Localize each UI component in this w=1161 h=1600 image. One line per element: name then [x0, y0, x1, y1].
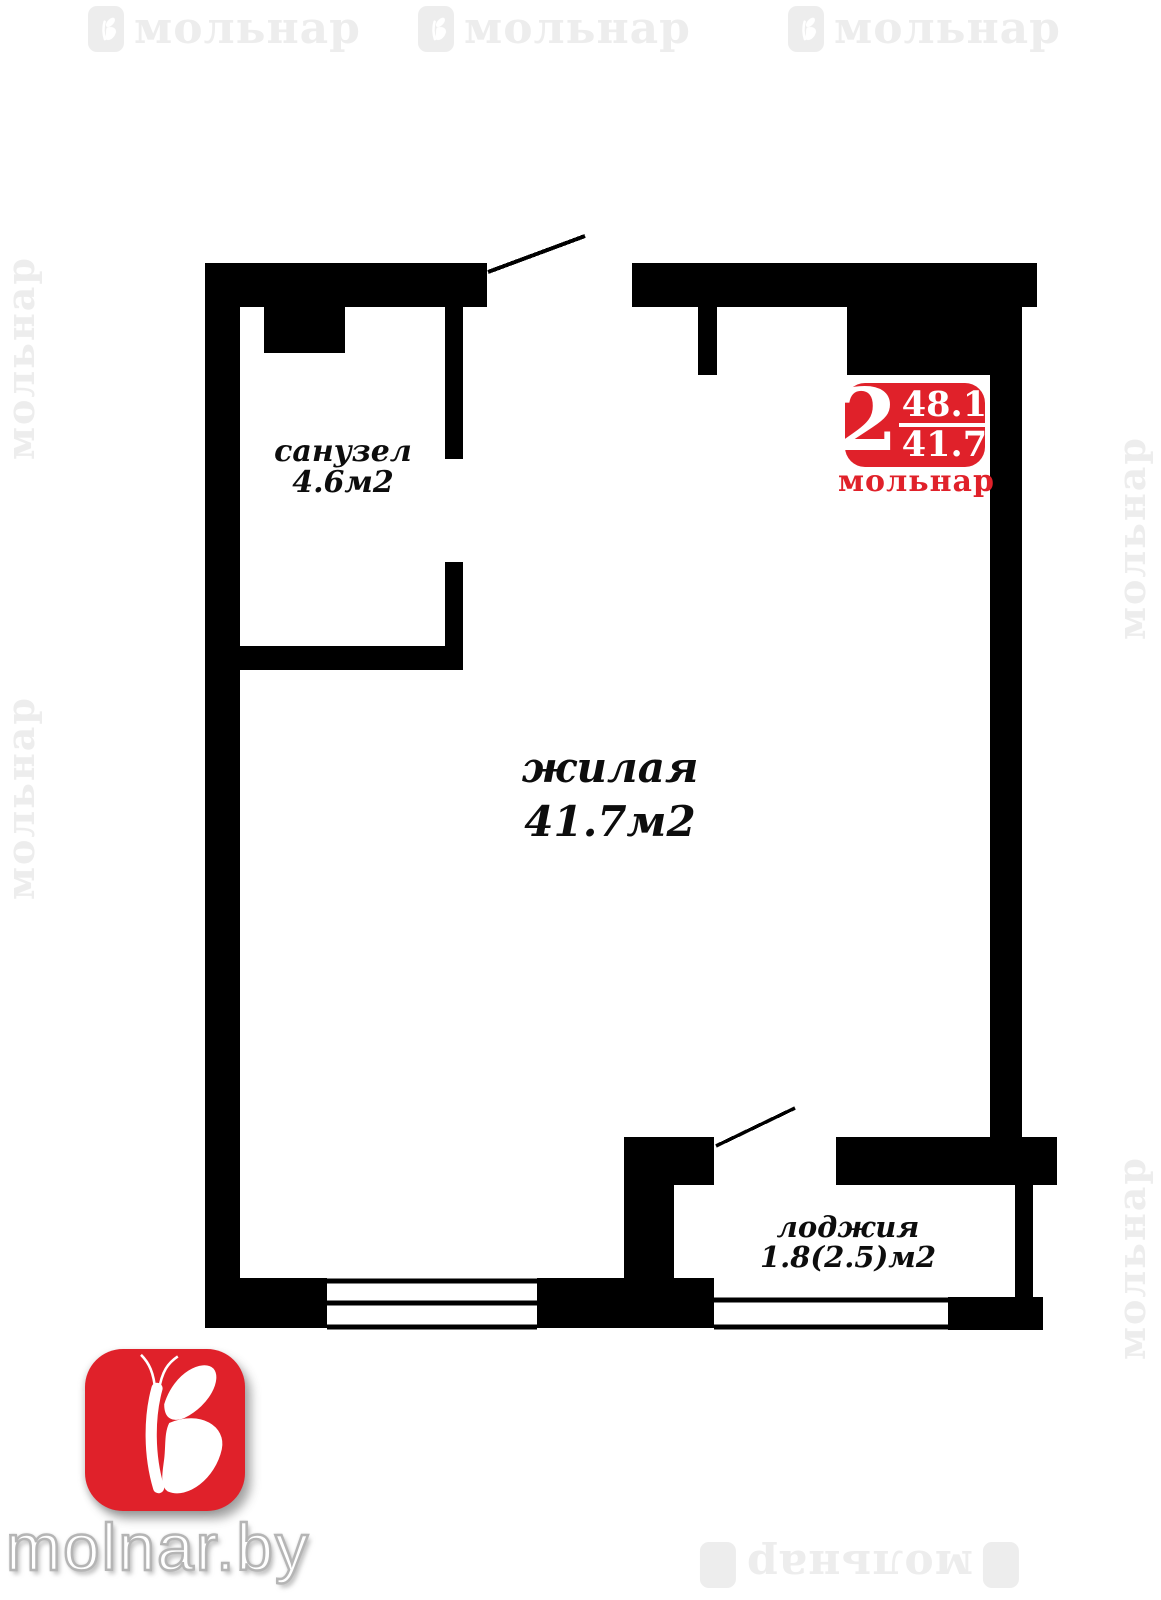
wall-loggia-right	[1015, 1185, 1033, 1297]
wall-left-outer	[205, 263, 240, 1328]
wall-bathroom-right-upper	[445, 303, 463, 459]
floorplan-canvas: мольнар мольнар мольнар мольнар мольнар …	[0, 0, 1161, 1600]
living-room-name: жилая	[460, 746, 760, 790]
wall-loggia-top	[836, 1137, 1057, 1185]
loggia-door-swing	[716, 1108, 795, 1146]
area-fraction: 48.1 41.7	[899, 388, 990, 462]
bathroom-name: санузел	[240, 436, 446, 467]
bathroom-area: 4.6м2	[240, 467, 446, 498]
entrance-door-swing	[488, 236, 585, 272]
wall-loggia-bottom-block	[948, 1297, 1043, 1330]
wall-entry-stub	[698, 307, 717, 375]
rooms-count: 2	[838, 381, 898, 461]
wall-bathroom-bottom	[240, 646, 463, 670]
butterfly-icon	[85, 1349, 245, 1511]
bathroom-label: санузел 4.6м2	[240, 436, 446, 498]
wall-top-right	[632, 263, 1037, 307]
loggia-name: лоджия	[698, 1212, 998, 1242]
living-area: 41.7	[902, 427, 987, 462]
area-badge: 2 48.1 41.7	[845, 383, 985, 467]
wall-top-right-block	[847, 307, 990, 375]
living-room-area: 41.7м2	[460, 800, 760, 844]
wall-loggia-left-top-block	[624, 1137, 714, 1185]
molnar-logo	[85, 1349, 245, 1511]
wall-right-outer	[990, 303, 1022, 1138]
loggia-area: 1.8(2.5)м2	[698, 1242, 998, 1272]
brand-name: мольнар	[838, 466, 992, 498]
loggia-label: лоджия 1.8(2.5)м2	[698, 1212, 998, 1272]
site-url: molnar.by	[6, 1512, 326, 1582]
living-room-label: жилая 41.7м2	[460, 746, 760, 844]
wall-loggia-left	[624, 1185, 674, 1278]
total-area: 48.1	[899, 388, 990, 427]
wall-bottom-left	[205, 1278, 327, 1328]
wall-bathroom-corner-block	[264, 303, 345, 353]
wall-bottom-mid	[537, 1278, 714, 1328]
wall-top-left	[205, 263, 487, 307]
